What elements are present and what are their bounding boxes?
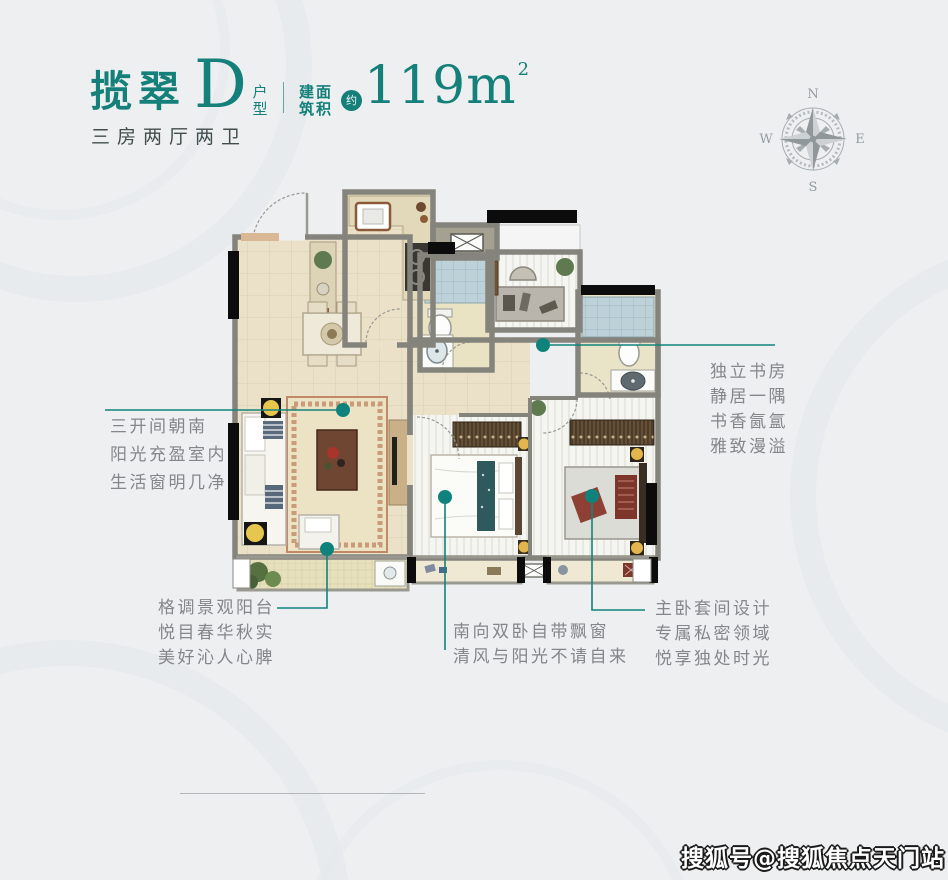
plant-sideboard: [314, 251, 332, 269]
floor-lamp: [246, 524, 264, 542]
plant-hall: [530, 400, 546, 416]
project-name: 揽翠: [90, 58, 186, 119]
decor-line: [180, 793, 425, 794]
entry-door-arc: [253, 193, 307, 237]
wardrobe-bedroom2: [453, 422, 521, 447]
unit-type-label: 户 型: [251, 84, 269, 118]
wardrobe-master: [570, 420, 654, 445]
watermark: 搜狐号@搜狐焦点天门站: [681, 839, 945, 873]
approx-badge: 约: [341, 90, 362, 111]
area-value: 119m2: [364, 56, 530, 116]
compass-s-label: S: [809, 180, 818, 195]
floor-lamp: [263, 400, 279, 416]
tv: [392, 437, 397, 485]
annotation-master: 主卧套间设计 专属私密领域 悦享独处时光: [655, 597, 772, 672]
annotation-study: 独立书房 静居一隅 书香氤氲 雅致漫溢: [710, 360, 788, 460]
lamp: [519, 439, 530, 450]
annotation-balcony: 格调景观阳台 悦目春华秋实 美好沁人心脾: [158, 596, 275, 671]
decor-ring-bottom-center: [300, 760, 700, 880]
header-divider: [283, 82, 284, 113]
bed2-throw: [477, 461, 495, 531]
dining-chair: [337, 355, 356, 366]
compass-icon: N S W E: [756, 84, 871, 196]
built-area-label: 建面 筑积: [299, 84, 333, 118]
decor-ring-right: [790, 240, 948, 752]
lamp: [631, 542, 643, 554]
shower-masterbath: [582, 297, 654, 337]
layout-subtitle: 三房两厅两卫: [91, 122, 247, 149]
decor-ring-bottom-left: [0, 640, 352, 880]
plant-study: [556, 258, 574, 276]
headboard-bedroom2: [515, 457, 522, 535]
dining-chair: [308, 355, 327, 366]
tv-console: [389, 420, 408, 505]
terrace-floor: [497, 225, 580, 252]
lamp: [631, 448, 643, 460]
floorplan-drawing: [225, 185, 665, 595]
coffee-table: [317, 430, 357, 490]
compass-w-label: W: [759, 132, 773, 147]
lamp: [519, 542, 530, 553]
headboard-master: [639, 463, 647, 543]
annotation-bedrooms: 南向双卧自带飘窗 清风与阳光不请自来: [453, 620, 629, 670]
unit-letter: D: [194, 46, 247, 123]
dining-chair: [308, 302, 327, 313]
compass-n-label: N: [807, 87, 818, 102]
floorplan-poster: 揽翠 D 户 型 建面 筑积 约 119m2 三房两厅两卫: [0, 0, 948, 880]
ac-platform-sign: [451, 234, 483, 251]
kitchen-jars: [416, 202, 426, 212]
compass-e-label: E: [855, 132, 865, 147]
annotation-living: 三开间朝南 阳光充盈室内 生活窗明几净: [110, 413, 227, 497]
ac-platform-sign-2: [522, 564, 546, 577]
